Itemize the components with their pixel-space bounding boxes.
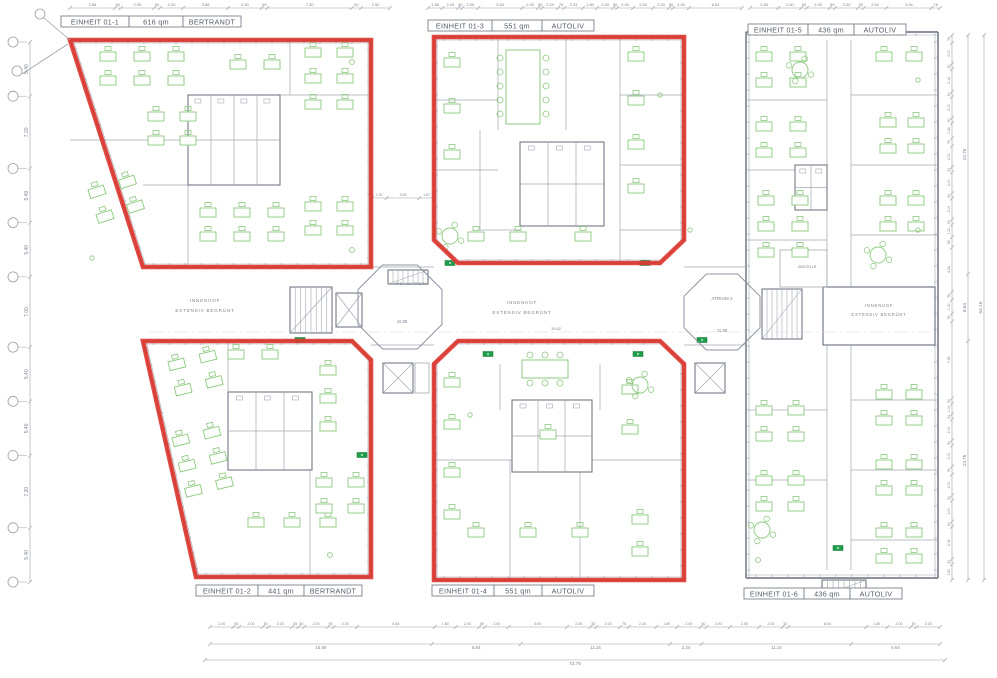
svg-text:2.00: 2.00 <box>312 622 319 626</box>
unit-label-01-4: EINHEIT 01-4 551 qm AUTOLIV <box>432 585 594 596</box>
svg-text:2.00: 2.00 <box>546 2 555 7</box>
courtyard-middle-dim: 19.82 <box>551 326 562 331</box>
atrium-1-dim: 10.88 <box>397 319 408 324</box>
svg-text:76: 76 <box>947 469 951 473</box>
svg-text:2.00: 2.00 <box>947 508 951 515</box>
svg-text:2.00: 2.00 <box>947 50 951 57</box>
svg-text:1.80: 1.80 <box>663 622 670 626</box>
svg-text:50: 50 <box>329 622 333 626</box>
svg-text:1.50: 1.50 <box>947 569 951 576</box>
svg-text:50: 50 <box>538 2 543 7</box>
courtyard-middle: INNENHOF EXTENSIV BEGRÜNT 19.82 <box>492 300 561 331</box>
svg-text:7.20: 7.20 <box>24 487 30 497</box>
dimension-strips: 3.88502.90502.003.882.90507.30802.501.80… <box>8 2 986 667</box>
svg-text:2.00: 2.00 <box>947 453 951 460</box>
svg-text:23.76: 23.76 <box>962 454 967 466</box>
svg-text:50: 50 <box>234 622 238 626</box>
svg-text:2.00: 2.00 <box>715 622 722 626</box>
courtyard-right-line1: INNENHOF <box>865 303 893 308</box>
svg-text:2.00: 2.00 <box>218 622 225 626</box>
svg-text:2.00: 2.00 <box>947 104 951 111</box>
svg-text:2.50: 2.50 <box>372 2 381 7</box>
unit-01-4-name: EINHEIT 01-4 <box>439 587 487 596</box>
svg-text:1.57: 1.57 <box>376 193 383 197</box>
unit-01-6-area: 436 qm <box>814 590 840 599</box>
svg-text:3.88: 3.88 <box>202 2 211 7</box>
svg-text:1.44: 1.44 <box>947 127 951 134</box>
svg-text:6.64: 6.64 <box>962 303 967 312</box>
svg-text:7.36: 7.36 <box>947 357 951 364</box>
svg-text:2.16: 2.16 <box>947 77 951 84</box>
svg-text:50: 50 <box>947 415 951 419</box>
svg-text:50: 50 <box>947 560 951 564</box>
svg-text:2.00: 2.00 <box>896 622 903 626</box>
unit-01-3-tenant: AUTOLIV <box>552 22 585 31</box>
svg-text:50: 50 <box>669 2 674 7</box>
svg-text:2.00: 2.00 <box>464 622 471 626</box>
floor-plan-canvas: 3.88502.90502.003.882.90507.30802.501.80… <box>0 0 997 678</box>
courtyard-middle-line2: EXTENSIV BEGRÜNT <box>492 309 551 315</box>
svg-text:50: 50 <box>591 622 595 626</box>
svg-text:2.34: 2.34 <box>682 645 691 650</box>
svg-text:2.00: 2.00 <box>947 179 951 186</box>
svg-text:11.16: 11.16 <box>771 645 782 650</box>
svg-text:1.80: 1.80 <box>873 622 880 626</box>
svg-text:50: 50 <box>947 168 951 172</box>
storage-room-label: ABSTELLR. <box>798 265 817 269</box>
svg-text:76: 76 <box>947 315 951 319</box>
svg-text:3.96: 3.96 <box>905 2 914 7</box>
svg-text:54.16: 54.16 <box>978 301 984 313</box>
svg-text:50: 50 <box>613 2 618 7</box>
svg-text:2.00: 2.00 <box>605 622 612 626</box>
unit-01-1-name: EINHEIT 01-1 <box>71 18 119 27</box>
courtyard-middle-line1: INNENHOF <box>507 300 537 305</box>
svg-text:50: 50 <box>264 622 268 626</box>
svg-text:2.00: 2.00 <box>843 2 852 7</box>
svg-text:2.50: 2.50 <box>741 622 748 626</box>
svg-text:50: 50 <box>480 622 484 626</box>
svg-text:1.57: 1.57 <box>423 193 430 197</box>
svg-text:76: 76 <box>622 622 626 626</box>
svg-text:80: 80 <box>354 2 359 7</box>
svg-text:7.30: 7.30 <box>306 2 315 7</box>
floor-plan-page: 3.88502.90502.003.882.90507.30802.501.80… <box>0 0 997 678</box>
svg-text:50: 50 <box>947 92 951 96</box>
svg-text:1.20: 1.20 <box>947 228 951 235</box>
unit-01-5-name: EINHEIT 01-5 <box>754 26 802 35</box>
svg-text:2.00: 2.00 <box>247 622 254 626</box>
svg-text:6.64: 6.64 <box>824 622 831 626</box>
svg-text:55: 55 <box>293 622 297 626</box>
svg-text:50: 50 <box>802 2 807 7</box>
courtyard-left: INNENHOF EXTENSIV BEGRÜNT <box>175 298 234 313</box>
svg-text:50: 50 <box>912 622 916 626</box>
svg-text:5.40: 5.40 <box>24 190 30 200</box>
svg-text:1.80: 1.80 <box>442 622 449 626</box>
courtyard-right: INNENHOF EXTENSIV BEGRÜNT <box>851 303 906 317</box>
svg-text:3.08: 3.08 <box>947 540 951 547</box>
svg-text:11.16: 11.16 <box>590 645 601 650</box>
svg-text:2.00: 2.00 <box>168 2 177 7</box>
svg-text:6.64: 6.64 <box>472 645 481 650</box>
svg-text:1.30: 1.30 <box>947 303 951 310</box>
svg-text:5.50: 5.50 <box>496 2 505 7</box>
svg-text:50: 50 <box>947 220 951 224</box>
unit-label-01-3: EINHEIT 01-3 551 qm AUTOLIV <box>428 20 594 31</box>
unit-01-6-tenant: AUTOLIV <box>860 590 893 599</box>
svg-text:76: 76 <box>947 294 951 298</box>
atrium-1: KFB 4.08 ATRIUM 1 10.88 <box>358 265 442 349</box>
courtyard-left-line2: EXTENSIV BEGRÜNT <box>175 307 234 313</box>
atrium-2-label: ATRIUM 2 <box>711 296 733 301</box>
svg-text:2.00: 2.00 <box>685 622 692 626</box>
unit-label-01-5: EINHEIT 01-5 436 qm AUTOLIV <box>748 24 906 35</box>
svg-text:5.40: 5.40 <box>24 423 30 433</box>
courtyard-left-line1: INNENHOF <box>190 298 220 303</box>
svg-text:2.00: 2.00 <box>621 2 630 7</box>
atrium-1-note: KFB 4.08 ATRIUM 1 <box>395 282 429 286</box>
svg-text:2.00: 2.00 <box>925 622 932 626</box>
svg-text:2.00: 2.00 <box>466 2 475 7</box>
svg-text:2.00: 2.00 <box>446 2 455 7</box>
unit-01-3-name: EINHEIT 01-3 <box>436 22 484 31</box>
svg-text:3.50: 3.50 <box>400 193 407 197</box>
unit-01-5-tenant: AUTOLIV <box>864 26 897 35</box>
unit-01-4-tenant: AUTOLIV <box>552 587 585 596</box>
svg-text:50: 50 <box>116 2 121 7</box>
unit-label-01-2: EINHEIT 01-2 441 qm BERTRANDT <box>196 585 362 596</box>
svg-text:50: 50 <box>262 2 267 7</box>
svg-text:2.00: 2.00 <box>871 2 880 7</box>
svg-text:2.00: 2.00 <box>814 2 823 7</box>
unit-01-6-name: EINHEIT 01-6 <box>750 590 798 599</box>
svg-text:98: 98 <box>947 240 951 244</box>
svg-text:5.40: 5.40 <box>24 550 30 560</box>
svg-text:2.00: 2.00 <box>657 2 666 7</box>
svg-text:2.90: 2.90 <box>134 2 143 7</box>
svg-text:6.64: 6.64 <box>712 2 721 7</box>
svg-text:50: 50 <box>784 622 788 626</box>
svg-text:2.00: 2.00 <box>526 2 535 7</box>
atrium-2: ATRIUM 2 11.98 <box>684 274 760 350</box>
svg-text:50: 50 <box>859 2 864 7</box>
svg-text:2.00: 2.00 <box>947 153 951 160</box>
svg-text:2.00: 2.00 <box>601 2 610 7</box>
svg-text:16.56: 16.56 <box>315 645 327 650</box>
svg-text:7.20: 7.20 <box>24 127 30 137</box>
unit-01-1-tenant: BERTRANDT <box>189 18 236 27</box>
svg-text:2.00: 2.00 <box>947 206 951 213</box>
svg-text:3.88: 3.88 <box>89 2 98 7</box>
svg-text:50: 50 <box>947 399 951 403</box>
unit-01-2-area: 441 qm <box>268 587 294 596</box>
svg-text:23.76: 23.76 <box>962 148 967 160</box>
svg-text:50: 50 <box>947 441 951 445</box>
svg-text:50: 50 <box>458 2 463 7</box>
svg-text:2.00: 2.00 <box>575 622 582 626</box>
unit-01-1-area: 616 qm <box>143 18 169 27</box>
svg-text:2.34: 2.34 <box>639 622 646 626</box>
atrium-2-dim: 11.98 <box>717 328 728 333</box>
svg-text:50: 50 <box>702 622 706 626</box>
svg-text:1.80: 1.80 <box>586 2 595 7</box>
svg-text:1.00: 1.00 <box>947 406 951 413</box>
svg-text:2.00: 2.00 <box>277 622 284 626</box>
svg-text:50: 50 <box>299 622 303 626</box>
svg-text:2.50: 2.50 <box>760 2 769 7</box>
svg-text:50: 50 <box>947 194 951 198</box>
svg-text:73.76: 73.76 <box>569 661 581 667</box>
unit-01-3-area: 551 qm <box>504 22 530 31</box>
unit-01-2-tenant: BERTRANDT <box>310 587 357 596</box>
svg-text:2.50: 2.50 <box>639 2 648 7</box>
svg-text:50: 50 <box>947 496 951 500</box>
unit-label-01-6: EINHEIT 01-6 436 qm AUTOLIV <box>744 588 902 599</box>
svg-text:2.00: 2.00 <box>342 622 349 626</box>
svg-text:76: 76 <box>947 37 951 41</box>
unit-label-01-1: EINHEIT 01-1 616 qm BERTRANDT <box>61 16 241 27</box>
svg-text:76: 76 <box>947 140 951 144</box>
svg-text:2.00: 2.00 <box>947 482 951 489</box>
svg-text:50: 50 <box>830 2 835 7</box>
svg-text:2.00: 2.00 <box>677 2 686 7</box>
svg-text:76: 76 <box>559 2 564 7</box>
svg-text:50: 50 <box>947 522 951 526</box>
svg-text:50: 50 <box>947 65 951 69</box>
svg-text:2.90: 2.90 <box>241 2 250 7</box>
svg-text:5.40: 5.40 <box>24 369 30 379</box>
svg-text:2.34: 2.34 <box>570 2 579 7</box>
svg-text:2.00: 2.00 <box>767 622 774 626</box>
unit-01-4-area: 551 qm <box>505 587 531 596</box>
svg-text:6.64: 6.64 <box>891 645 900 650</box>
svg-text:2.00: 2.00 <box>786 2 795 7</box>
svg-text:5.40: 5.40 <box>24 245 30 255</box>
svg-text:6.64: 6.64 <box>392 622 399 626</box>
svg-text:1.80: 1.80 <box>431 2 440 7</box>
svg-text:50: 50 <box>155 2 160 7</box>
courtyard-right-line2: EXTENSIV BEGRÜNT <box>851 312 906 317</box>
unit-01-5-area: 436 qm <box>818 26 844 35</box>
svg-text:4.24: 4.24 <box>947 266 951 273</box>
svg-text:5.00: 5.00 <box>534 622 541 626</box>
svg-text:2.00: 2.00 <box>493 622 500 626</box>
svg-text:50: 50 <box>947 119 951 123</box>
svg-text:7.00: 7.00 <box>24 307 30 317</box>
svg-text:2.00: 2.00 <box>947 426 951 433</box>
svg-text:76: 76 <box>933 2 938 7</box>
unit-01-2-name: EINHEIT 01-2 <box>203 587 251 596</box>
